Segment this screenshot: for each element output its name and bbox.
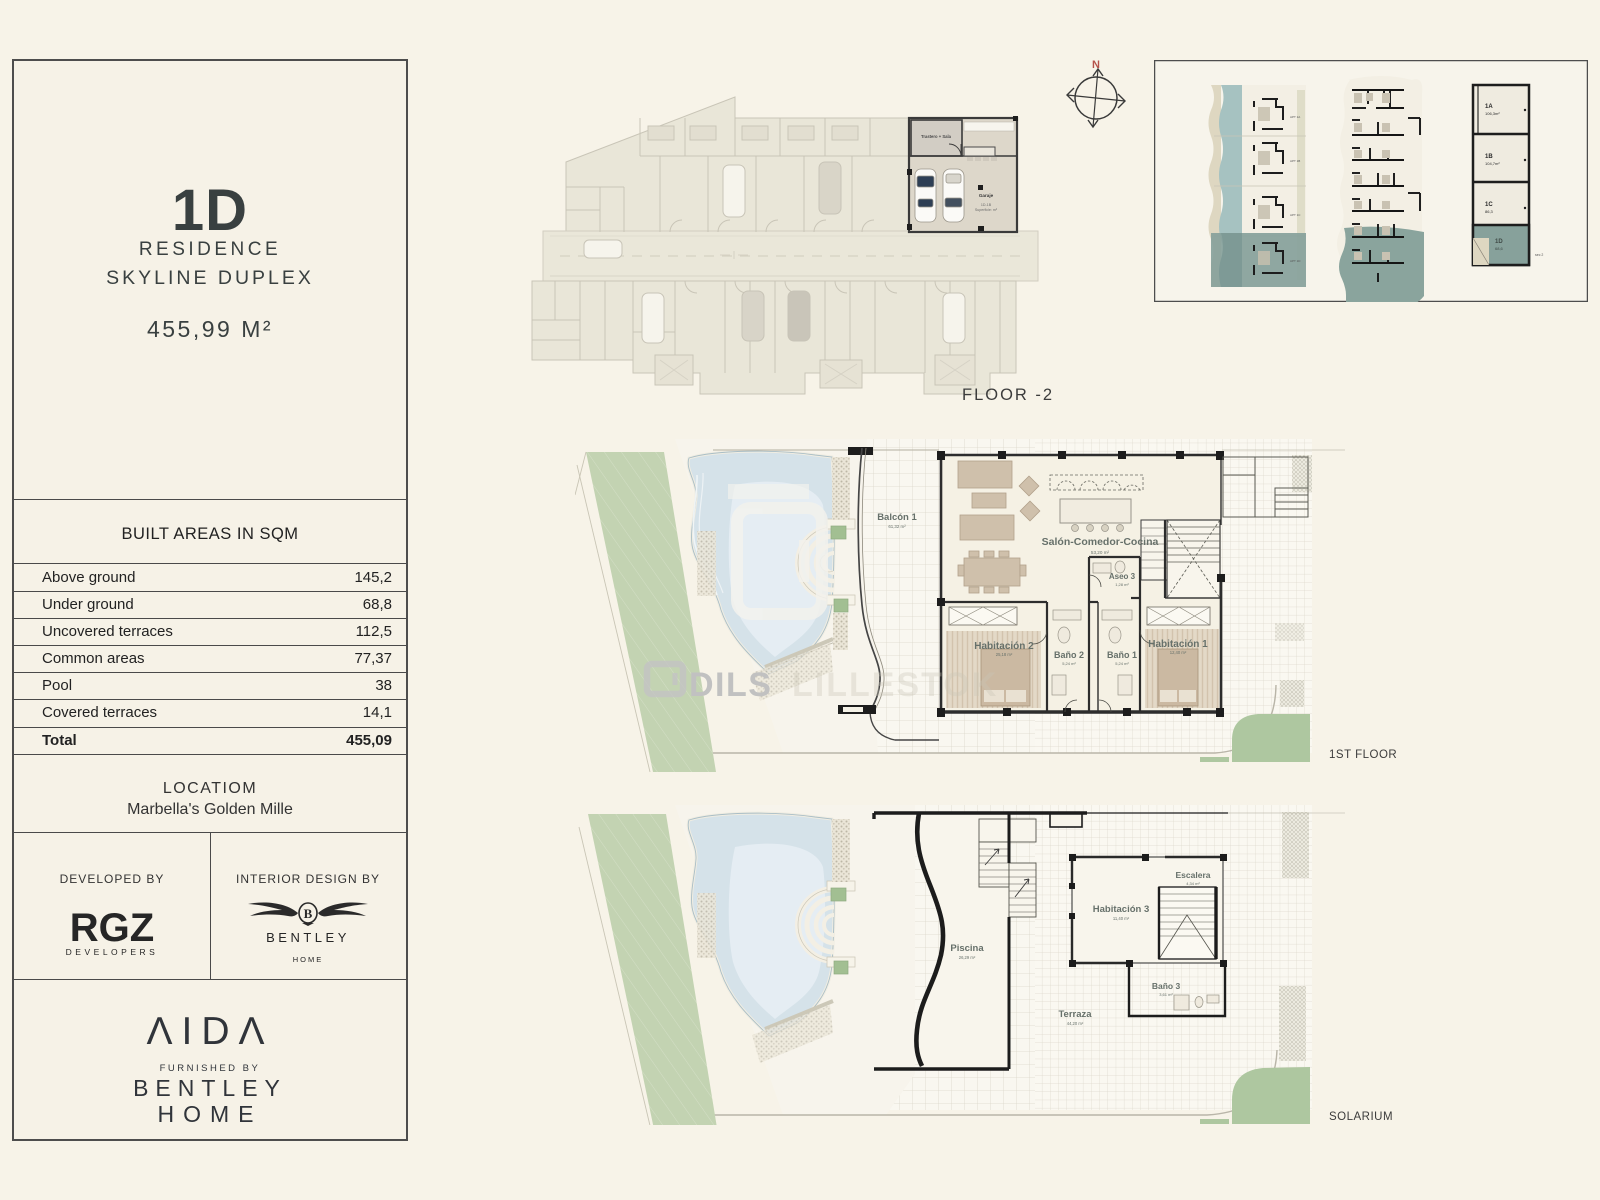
svg-text:Habitación 3: Habitación 3: [1093, 904, 1150, 915]
svg-text:68,6: 68,6: [1495, 246, 1504, 251]
svg-text:APT 1A: APT 1A: [1290, 115, 1300, 119]
svg-text:APT 1C: APT 1C: [1290, 213, 1301, 217]
svg-text:1B: 1B: [1485, 154, 1493, 160]
svg-text:APT 1B: APT 1B: [1290, 159, 1300, 163]
svg-text:26,29 m²: 26,29 m²: [959, 955, 976, 960]
svg-text:104,7m²: 104,7m²: [1485, 161, 1500, 166]
svg-text:1A: 1A: [1485, 104, 1493, 110]
svg-text:LILLESTOK: LILLESTOK: [792, 666, 998, 704]
svg-text:sec 2: sec 2: [1535, 253, 1543, 257]
svg-text:Trastero + Sala: Trastero + Sala: [921, 134, 952, 139]
svg-text:4,34 m²: 4,34 m²: [1186, 881, 1200, 886]
svg-text:Piscina: Piscina: [950, 943, 984, 954]
svg-text:Terraza: Terraza: [1058, 1009, 1092, 1020]
svg-text:Superficie: m²: Superficie: m²: [975, 208, 998, 212]
svg-text:1D: 1D: [1495, 239, 1503, 245]
svg-text:86,3: 86,3: [1485, 209, 1494, 214]
svg-text:3,61 m²: 3,61 m²: [1159, 992, 1173, 997]
svg-text:1D-1B: 1D-1B: [981, 203, 992, 207]
svg-text:Garaje: Garaje: [979, 193, 994, 198]
svg-text:Baño 3: Baño 3: [1152, 981, 1181, 991]
svg-text:1C: 1C: [1485, 202, 1493, 208]
svg-text:106,3m²: 106,3m²: [1485, 111, 1500, 116]
svg-text:11,40 m²: 11,40 m²: [1113, 916, 1130, 921]
svg-text:B: B: [304, 906, 313, 921]
svg-text:44,20 m²: 44,20 m²: [1067, 1021, 1084, 1026]
svg-text:DILS: DILS: [689, 666, 772, 704]
svg-text:APT 1D: APT 1D: [1290, 259, 1301, 263]
svg-text:Escalera: Escalera: [1176, 870, 1211, 880]
